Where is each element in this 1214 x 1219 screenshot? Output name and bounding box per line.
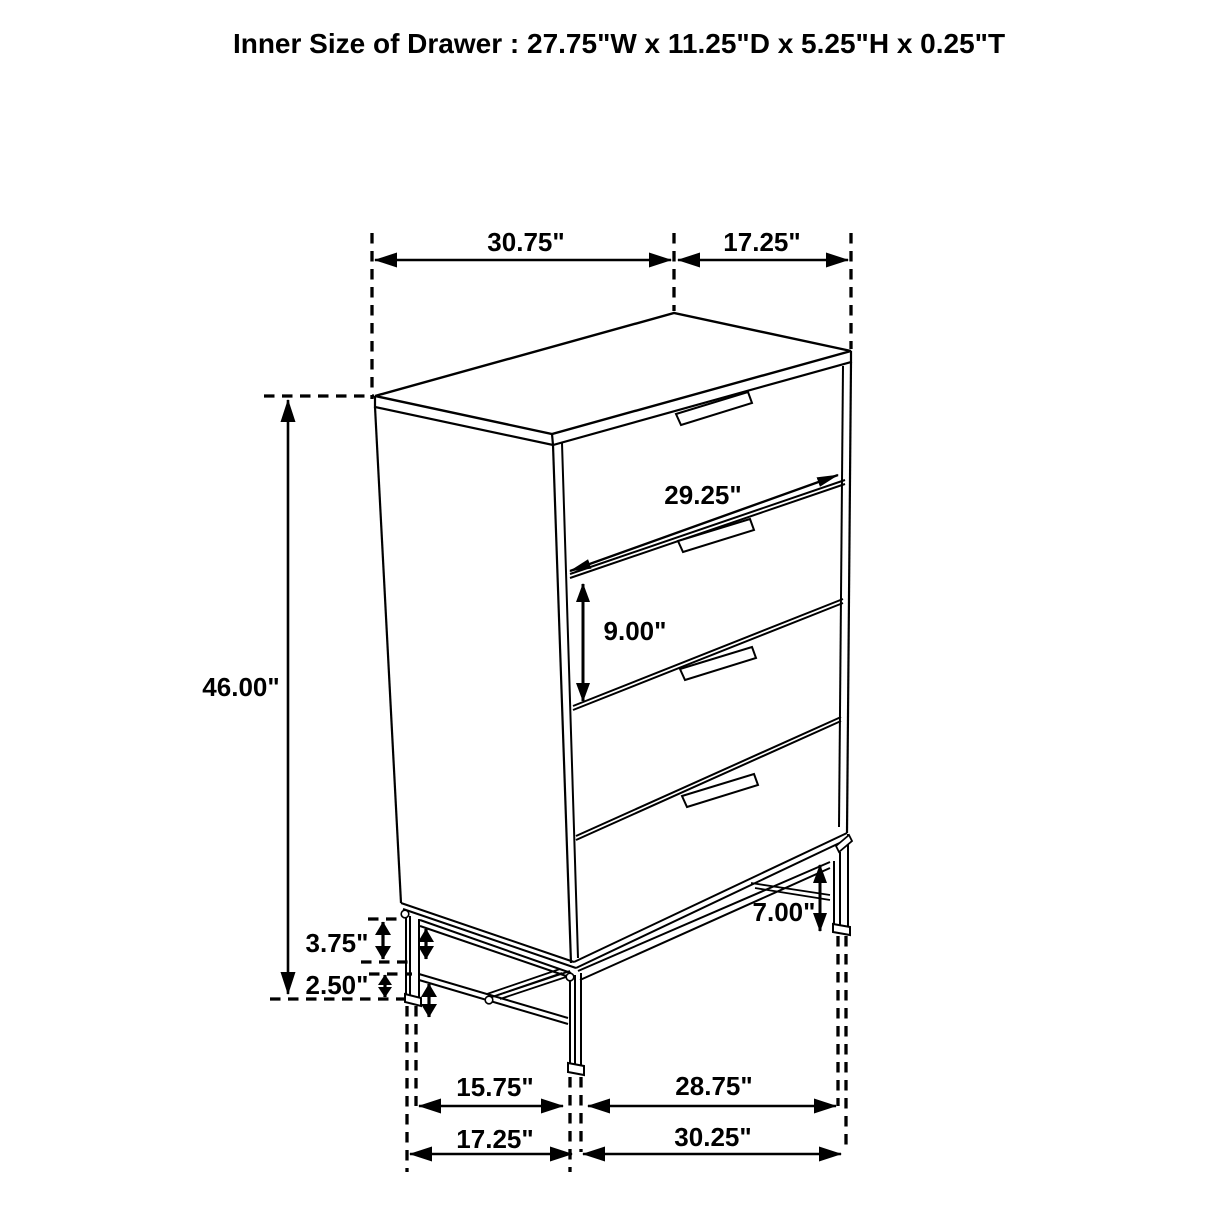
svg-text:17.25": 17.25" [456,1124,533,1154]
svg-text:17.25": 17.25" [723,227,800,257]
svg-text:30.75": 30.75" [487,227,564,257]
svg-text:9.00": 9.00" [604,616,667,646]
svg-text:28.75": 28.75" [675,1071,752,1101]
svg-text:15.75": 15.75" [456,1072,533,1102]
svg-text:Inner Size of Drawer : 27.75"W: Inner Size of Drawer : 27.75"W x 11.25"D… [233,28,1005,59]
svg-text:46.00": 46.00" [202,672,279,702]
svg-text:29.25": 29.25" [664,480,741,510]
svg-text:3.75": 3.75" [306,928,369,958]
svg-text:7.00": 7.00" [753,897,816,927]
svg-text:30.25": 30.25" [674,1122,751,1152]
svg-text:2.50": 2.50" [306,970,369,1000]
